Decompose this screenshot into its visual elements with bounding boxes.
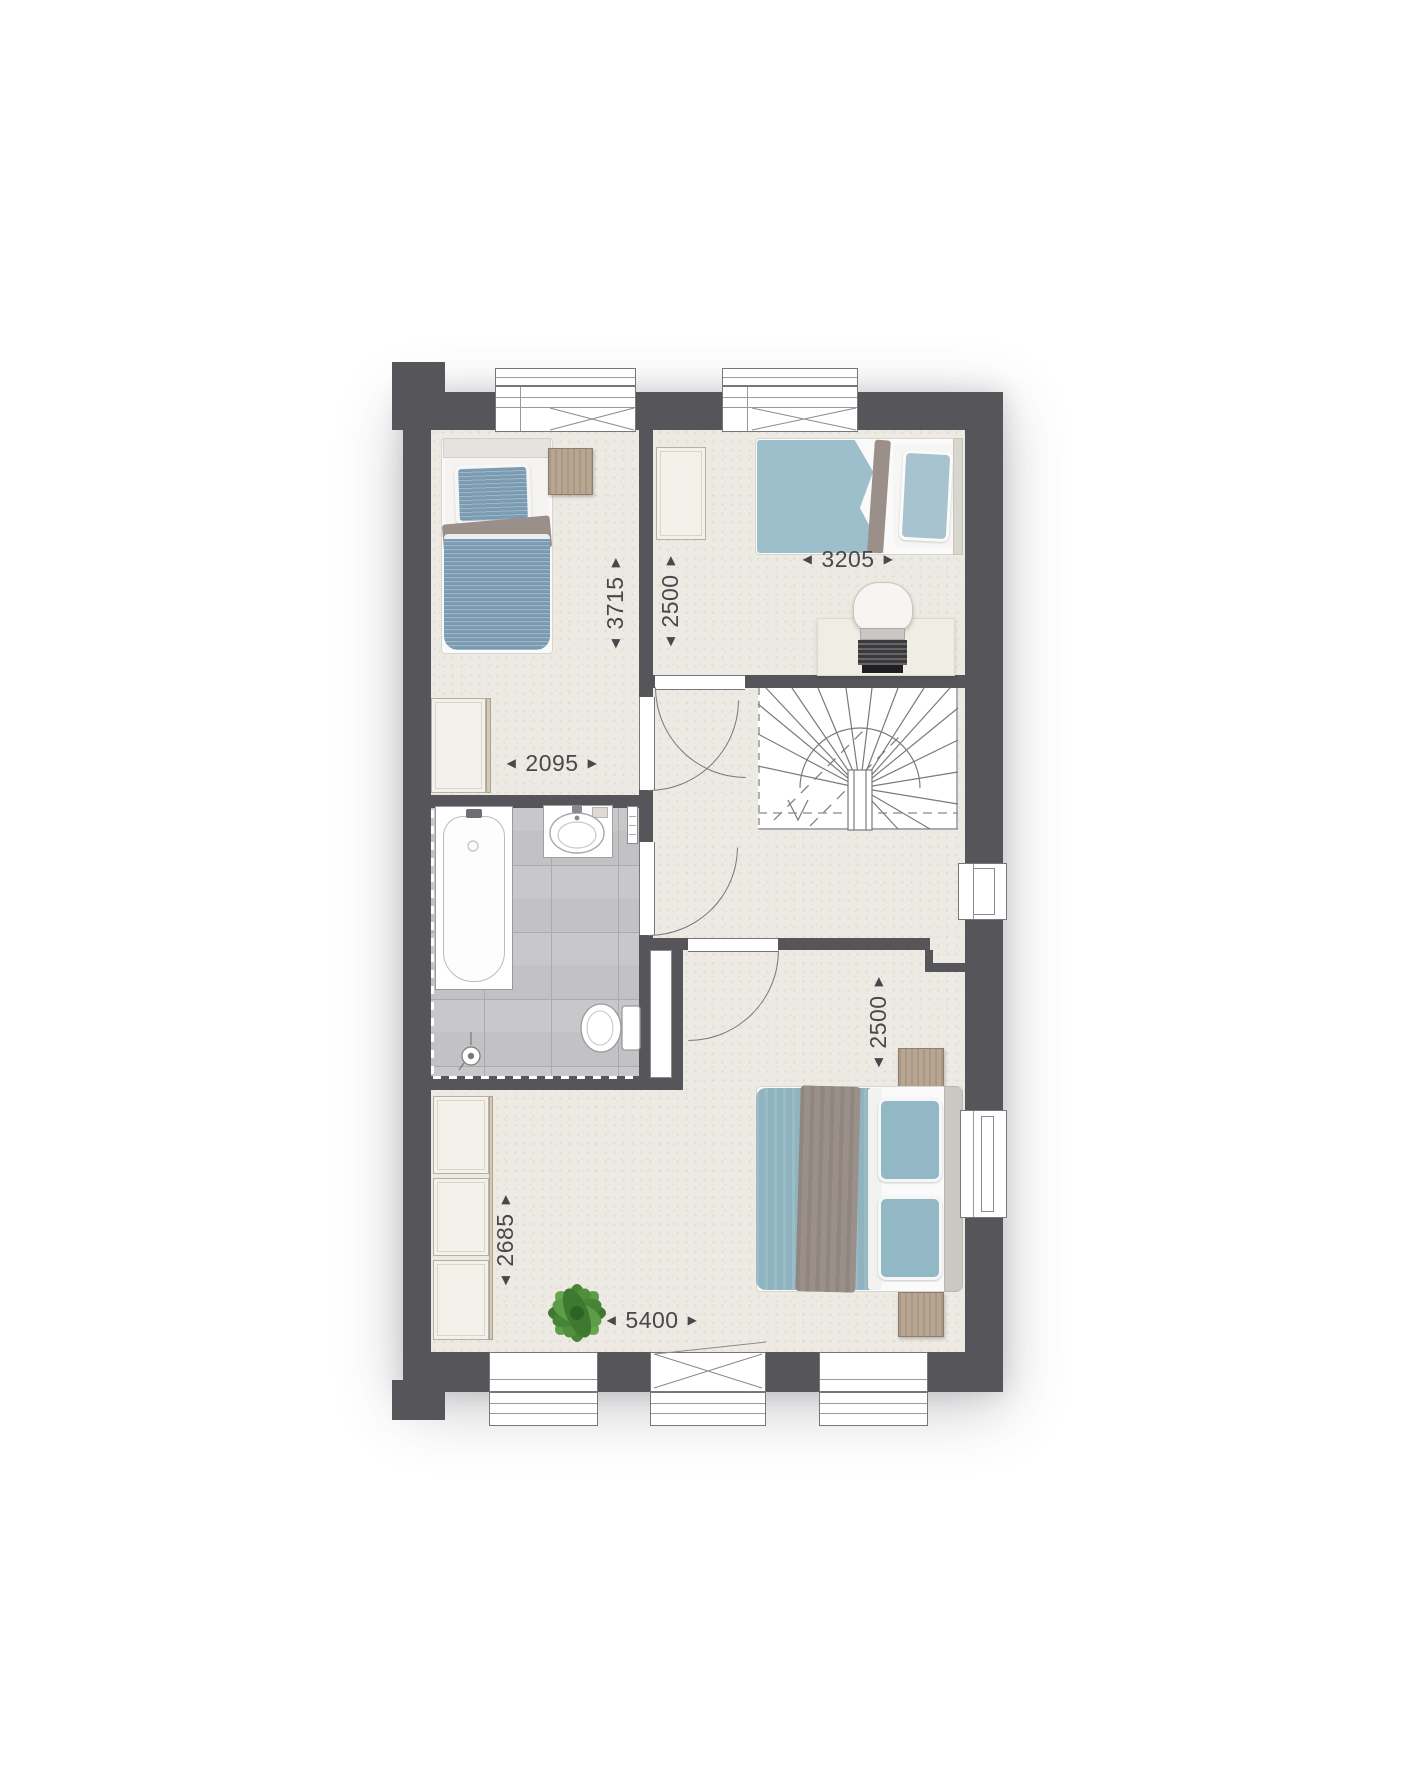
dimension-bedroom2-width: ◀ 3205 ▶ (788, 546, 908, 572)
dimension-master-width: ◀ 5400 ▶ (592, 1307, 712, 1333)
dimension-value: 2685 (492, 1213, 519, 1266)
linework-overlay (0, 0, 1417, 1772)
bathtub-drain (468, 841, 478, 851)
shower-mixer (459, 1032, 480, 1070)
dim-arrow: ▶ (588, 757, 598, 769)
dim-arrow: ◀ (499, 1276, 511, 1286)
dimension-master-depth-left: ◀ 2685 ▶ (492, 1180, 518, 1300)
dimension-value: 2095 (525, 750, 578, 777)
floor-plan: ◀ 3715 ▶ ◀ 2500 ▶ ◀ 3205 ▶ ◀ 2095 ▶ ◀ 25… (0, 0, 1417, 1772)
dimension-value: 2500 (865, 995, 892, 1048)
staircase (758, 688, 958, 830)
dimension-value: 2500 (657, 574, 684, 627)
dim-arrow: ◀ (507, 757, 517, 769)
dim-arrow: ▶ (688, 1314, 698, 1326)
dim-arrow: ▶ (609, 558, 621, 568)
dim-arrow: ▶ (872, 977, 884, 987)
dimension-bedroom1-width: ◀ 2095 ▶ (492, 750, 612, 776)
dimension-master-depth-right: ◀ 2500 ▶ (865, 962, 891, 1082)
dim-arrow: ◀ (803, 553, 813, 565)
dimension-value: 3205 (821, 546, 874, 573)
dimension-value: 5400 (625, 1307, 678, 1334)
stair-newel-post (848, 770, 872, 830)
dim-arrow: ◀ (664, 637, 676, 647)
dim-arrow: ▶ (884, 553, 894, 565)
dim-arrow: ▶ (499, 1195, 511, 1205)
dim-arrow: ◀ (609, 639, 621, 649)
dim-arrow: ◀ (872, 1058, 884, 1068)
dim-arrow: ▶ (664, 556, 676, 566)
toilet (581, 1004, 640, 1052)
dim-arrow: ◀ (607, 1314, 617, 1326)
dimension-bedroom2-depth: ◀ 2500 ▶ (657, 541, 683, 661)
washbasin (550, 805, 604, 853)
dimension-value: 3715 (602, 576, 629, 629)
dimension-bedroom1-depth: ◀ 3715 ▶ (602, 543, 628, 663)
